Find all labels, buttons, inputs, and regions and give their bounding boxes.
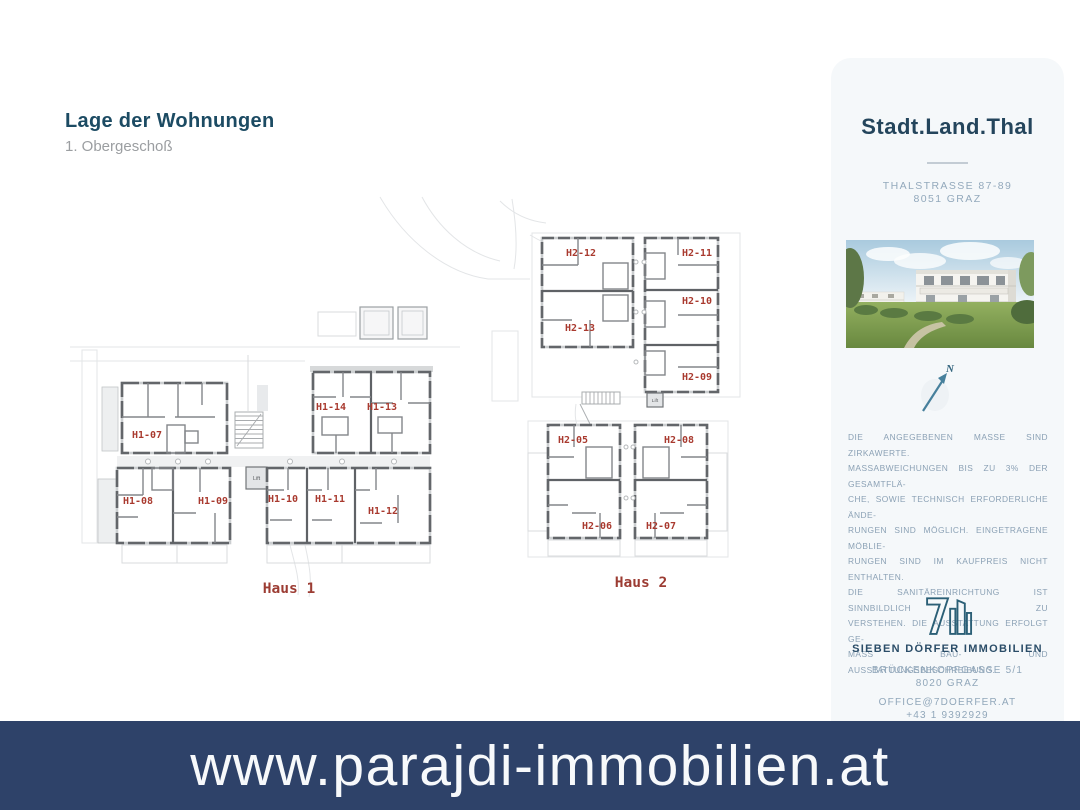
footer-banner: www.parajdi-immobilien.at bbox=[0, 721, 1080, 810]
svg-text:N: N bbox=[945, 363, 955, 375]
haus2-stairs bbox=[580, 392, 620, 428]
unit-label: H2-13 bbox=[565, 323, 595, 334]
svg-text:Lift: Lift bbox=[652, 398, 659, 404]
unit-label: H1-13 bbox=[367, 402, 397, 413]
unit-label: H2-08 bbox=[664, 435, 694, 446]
unit-label: H2-12 bbox=[566, 248, 596, 259]
haus2-label: Haus 2 bbox=[615, 575, 667, 591]
website-url: www.parajdi-immobilien.at bbox=[190, 733, 890, 799]
unit-label: H1-10 bbox=[268, 494, 298, 505]
haus2-block-upper-right bbox=[645, 238, 718, 392]
project-title: Stadt.Land.Thal bbox=[831, 114, 1064, 140]
page-title: Lage der Wohnungen bbox=[65, 110, 274, 133]
disclaimer-text: DIE ANGEGEBENEN MASSE SIND ZIRKAWERTE. M… bbox=[848, 430, 1048, 678]
haus1-label: Haus 1 bbox=[263, 581, 316, 597]
unit-label: H2-09 bbox=[682, 372, 712, 383]
unit-label: H2-07 bbox=[646, 521, 676, 532]
page-subtitle: 1. Obergeschoß bbox=[65, 138, 173, 155]
building-photo bbox=[846, 240, 1034, 348]
company-name: SIEBEN DÖRFER IMMOBILIEN bbox=[831, 643, 1064, 655]
unit-label: H2-11 bbox=[682, 248, 712, 259]
divider bbox=[927, 162, 968, 164]
unit-label: H2-05 bbox=[558, 435, 588, 446]
balcony bbox=[98, 479, 117, 543]
info-sidebar: Stadt.Land.Thal THALSTRASSE 87-89 8051 G… bbox=[831, 58, 1064, 721]
unit-label: H1-11 bbox=[315, 494, 345, 505]
haus1-plan: Lift H1-0 bbox=[98, 307, 433, 597]
roof-balcony bbox=[360, 307, 393, 339]
haus1-lift: Lift bbox=[246, 467, 267, 489]
company-address: BRÜCKENKOPFGASSE 5/1 8020 GRAZ bbox=[831, 664, 1064, 690]
haus1-block-top-left bbox=[122, 383, 227, 453]
compass-north-icon: N bbox=[917, 361, 961, 417]
unit-label: H1-14 bbox=[316, 402, 346, 413]
floorplan-drawing: Lift H1-0 bbox=[60, 195, 770, 625]
company-contact: OFFICE@7DOERFER.AT +43 1 9392929 bbox=[831, 696, 1064, 722]
balcony bbox=[102, 387, 118, 451]
company-email: OFFICE@7DOERFER.AT bbox=[831, 696, 1064, 709]
project-address: THALSTRASSE 87-89 8051 GRAZ bbox=[831, 180, 1064, 206]
svg-text:Lift: Lift bbox=[253, 476, 261, 482]
flyer-page: Lage der Wohnungen 1. Obergeschoß bbox=[0, 0, 1080, 810]
unit-label: H1-08 bbox=[123, 496, 153, 507]
haus1-stairwell bbox=[235, 355, 268, 448]
haus2-lift: Lift bbox=[647, 393, 663, 407]
haus1-block-bottom-right bbox=[267, 468, 430, 543]
unit-label: H1-09 bbox=[198, 496, 228, 507]
unit-label: H1-07 bbox=[132, 430, 162, 441]
unit-label: H2-10 bbox=[682, 296, 712, 307]
haus2-plan: Lift bbox=[528, 238, 727, 591]
company-logo-icon bbox=[914, 592, 980, 636]
unit-label: H1-12 bbox=[368, 506, 398, 517]
unit-label: H2-06 bbox=[582, 521, 612, 532]
